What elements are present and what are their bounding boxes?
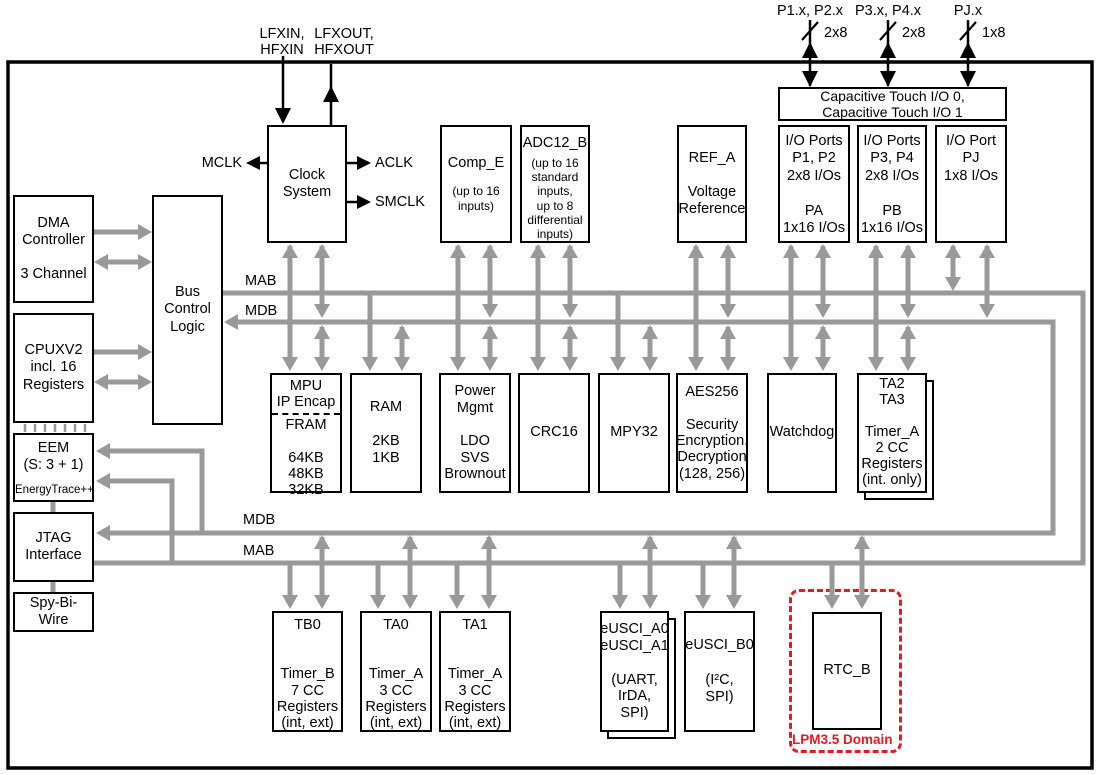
jtag-label: JTAG Interface [25,530,81,564]
dma-label: DMA Controller 3 Channel [20,215,86,283]
block-aes256: AES256 Security Encryption, Decryption (… [676,373,748,493]
port12-label: I/O Ports P1, P2 2x8 I/Os PA 1x16 I/Os [783,133,845,236]
mpy-label: MPY32 [610,424,658,441]
block-mpy32: MPY32 [598,373,670,493]
wdt-label: Watchdog [770,424,835,441]
eem-energytrace-label: EnergyTrace++ [15,484,92,498]
label-mclk: MCLK [196,155,242,171]
label-aclk: ACLK [375,155,413,171]
block-bus-control-logic: Bus Control Logic [152,195,223,425]
clock-label: Clock System [283,167,331,201]
block-eusci-a0-a1: eUSCI_A0 eUSCI_A1 (UART, IrDA, SPI) [600,611,669,732]
block-watchdog: Watchdog [767,373,837,493]
block-tb0: TB0 Timer_B 7 CC Registers (int, ext) [272,611,343,732]
block-io-port-pj: I/O Port PJ 1x8 I/Os [935,125,1007,243]
block-spy-bi-wire: Spy-Bi-Wire [13,592,94,632]
tb0-label: TB0 Timer_B 7 CC Registers (int, ext) [277,617,338,731]
label-pj-width: 1x8 [982,25,1005,41]
mpu-fram-label: FRAM 64KB 48KB 32KB [272,417,340,498]
block-ta2-ta3: TA2 TA3 Timer_A 2 CC Registers (int. onl… [857,373,927,493]
block-io-ports-p1-p2: I/O Ports P1, P2 2x8 I/Os PA 1x16 I/Os [778,125,850,243]
block-dma-controller: DMA Controller 3 Channel [13,195,94,303]
block-ref-a: REF_A Voltage Reference [677,125,747,243]
label-p34-width: 2x8 [902,25,925,41]
comp-sub: (up to 16 inputs) [452,184,499,212]
block-power-mgmt: Power Mgmt LDO SVS Brownout [439,373,511,493]
label-lfxout-hfxout: LFXOUT, HFXOUT [303,26,385,58]
crc-label: CRC16 [530,424,578,441]
usci-a-label: eUSCI_A0 eUSCI_A1 (UART, IrDA, SPI) [600,621,669,721]
ref-label: REF_A Voltage Reference [679,150,746,218]
label-mab-upper: MAB [245,273,276,289]
block-adc12-b: ADC12_B (up to 16 standard inputs, up to… [520,125,590,243]
aes-label: AES256 Security Encryption, Decryption (… [676,384,749,482]
ta23-label: TA2 TA3 Timer_A 2 CC Registers (int. onl… [861,377,922,489]
rtc-label: RTC_B [823,662,870,679]
block-rtc-b: RTC_B [812,612,882,730]
comp-title: Comp_E [448,155,504,172]
label-mdb-upper: MDB [245,303,277,319]
label-p3x-p4x: P3.x, P4.x [836,3,940,19]
mpu-divider [272,413,340,415]
block-io-ports-p3-p4: I/O Ports P3, P4 2x8 I/Os PB 1x16 I/Os [857,125,927,243]
bcl-label: Bus Control Logic [164,284,211,335]
lpm35-domain-label: LPM3.5 Domain [792,732,893,747]
block-clock-system: Clock System [267,125,347,243]
label-p12-width: 2x8 [824,25,847,41]
ta1-label: TA1 Timer_A 3 CC Registers (int, ext) [444,617,505,731]
block-eusci-b0: eUSCI_B0 (I²C, SPI) [684,611,755,732]
block-capacitive-touch: Capacitive Touch I/O 0, Capacitive Touch… [778,87,1007,121]
pwr-label: Power Mgmt LDO SVS Brownout [444,383,505,483]
sbw-label: Spy-Bi-Wire [15,595,92,629]
adc-sub: (up to 16 standard inputs, up to 8 diffe… [522,156,588,241]
block-mpu-fram: MPU IP Encap FRAM 64KB 48KB 32KB [270,373,342,493]
block-eem: EEM (S: 3 + 1) EnergyTrace++ [13,433,94,502]
eem-label: EEM (S: 3 + 1) [23,440,83,473]
block-ta1: TA1 Timer_A 3 CC Registers (int, ext) [439,611,511,732]
captouch-label: Capacitive Touch I/O 0, Capacitive Touch… [820,88,964,120]
cpu-label: CPUXV2 incl. 16 Registers [23,342,84,393]
label-smclk: SMCLK [375,194,425,210]
ram-label: RAM 2KB 1KB [370,399,402,467]
label-mab-lower: MAB [243,543,274,559]
label-pjx: PJ.x [940,3,996,19]
mcu-block-diagram: LFXIN, HFXIN LFXOUT, HFXOUT P1.x, P2.x P… [0,0,1100,775]
usci-b-label: eUSCI_B0 (I²C, SPI) [685,637,754,705]
portj-label: I/O Port PJ 1x8 I/Os [944,133,998,184]
label-mdb-lower: MDB [243,512,275,528]
block-cpuxv2: CPUXV2 incl. 16 Registers [13,313,94,423]
port34-label: I/O Ports P3, P4 2x8 I/Os PB 1x16 I/Os [861,133,923,236]
block-ram: RAM 2KB 1KB [350,373,422,493]
ta0-label: TA0 Timer_A 3 CC Registers (int, ext) [365,617,426,731]
mpu-title: MPU IP Encap [272,378,340,410]
block-ta0: TA0 Timer_A 3 CC Registers (int, ext) [360,611,432,732]
block-comp-e: Comp_E (up to 16 inputs) [440,125,512,243]
block-crc16: CRC16 [518,373,590,493]
adc-title: ADC12_B [523,135,587,151]
block-jtag-interface: JTAG Interface [13,512,94,582]
